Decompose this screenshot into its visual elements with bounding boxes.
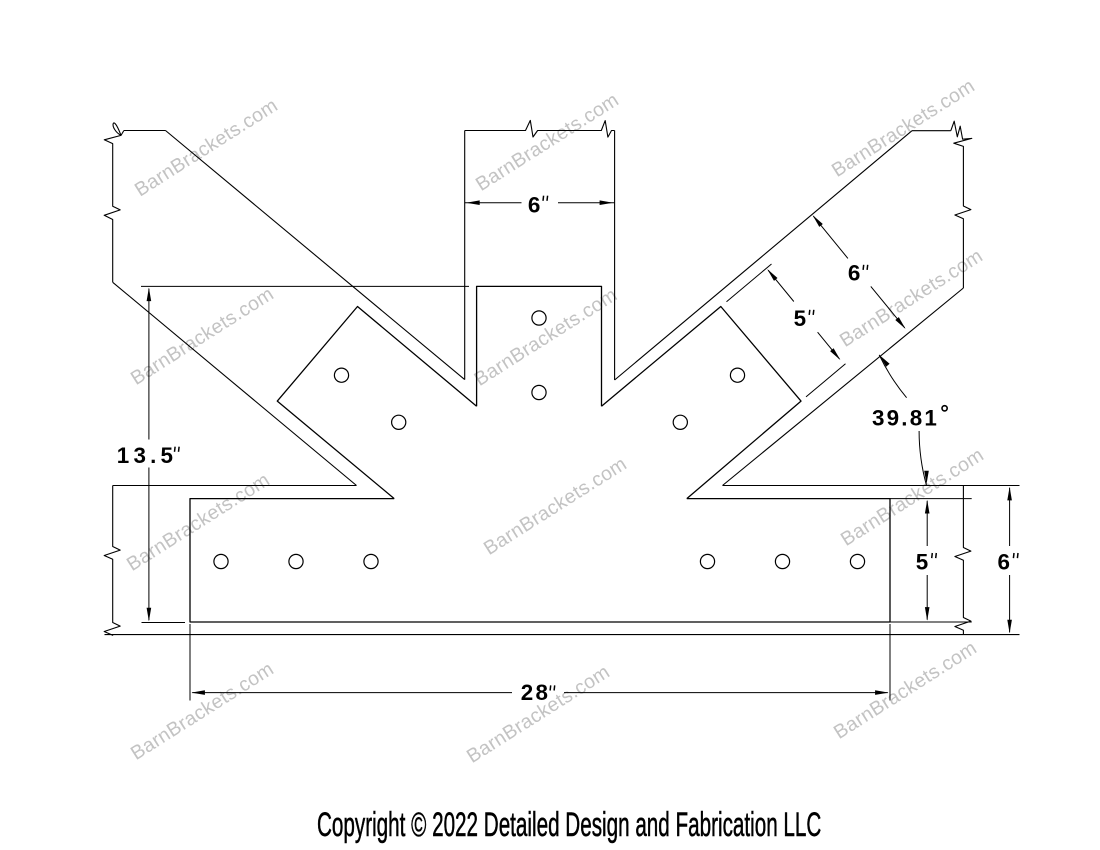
svg-text:BarnBrackets.com: BarnBrackets.com [830, 637, 981, 744]
svg-text:5: 5 [916, 549, 928, 574]
svg-text:6: 6 [998, 549, 1010, 574]
svg-text:28: 28 [521, 680, 550, 705]
svg-text:BarnBrackets.com: BarnBrackets.com [480, 453, 631, 560]
svg-text:5: 5 [794, 306, 806, 331]
svg-text:Copyright © 2022 Detailed Desi: Copyright © 2022 Detailed Design and Fab… [317, 806, 821, 845]
svg-text:BarnBrackets.com: BarnBrackets.com [837, 444, 988, 551]
svg-text:6: 6 [848, 260, 860, 285]
svg-text:BarnBrackets.com: BarnBrackets.com [123, 469, 274, 576]
svg-text:BarnBrackets.com: BarnBrackets.com [127, 658, 278, 765]
svg-text:6: 6 [528, 192, 540, 217]
svg-text:13.5: 13.5 [117, 443, 177, 468]
svg-text:39.81: 39.81 [872, 406, 939, 431]
svg-text:BarnBrackets.com: BarnBrackets.com [131, 94, 282, 201]
svg-text:BarnBrackets.com: BarnBrackets.com [463, 661, 614, 768]
svg-text:BarnBrackets.com: BarnBrackets.com [472, 89, 623, 196]
svg-text:BarnBrackets.com: BarnBrackets.com [828, 75, 979, 182]
svg-text:BarnBrackets.com: BarnBrackets.com [470, 284, 621, 391]
